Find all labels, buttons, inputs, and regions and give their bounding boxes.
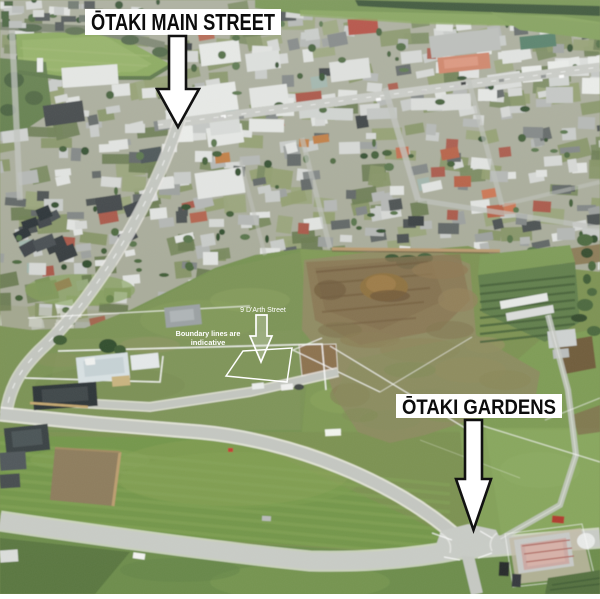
- svg-text:ŌTAKI GARDENS: ŌTAKI GARDENS: [402, 396, 556, 419]
- svg-text:9 D'Arth Street: 9 D'Arth Street: [240, 307, 286, 314]
- svg-text:indicative: indicative: [191, 338, 226, 347]
- svg-text:ŌTAKI MAIN STREET: ŌTAKI MAIN STREET: [91, 9, 275, 35]
- svg-text:Boundary lines are: Boundary lines are: [176, 329, 241, 338]
